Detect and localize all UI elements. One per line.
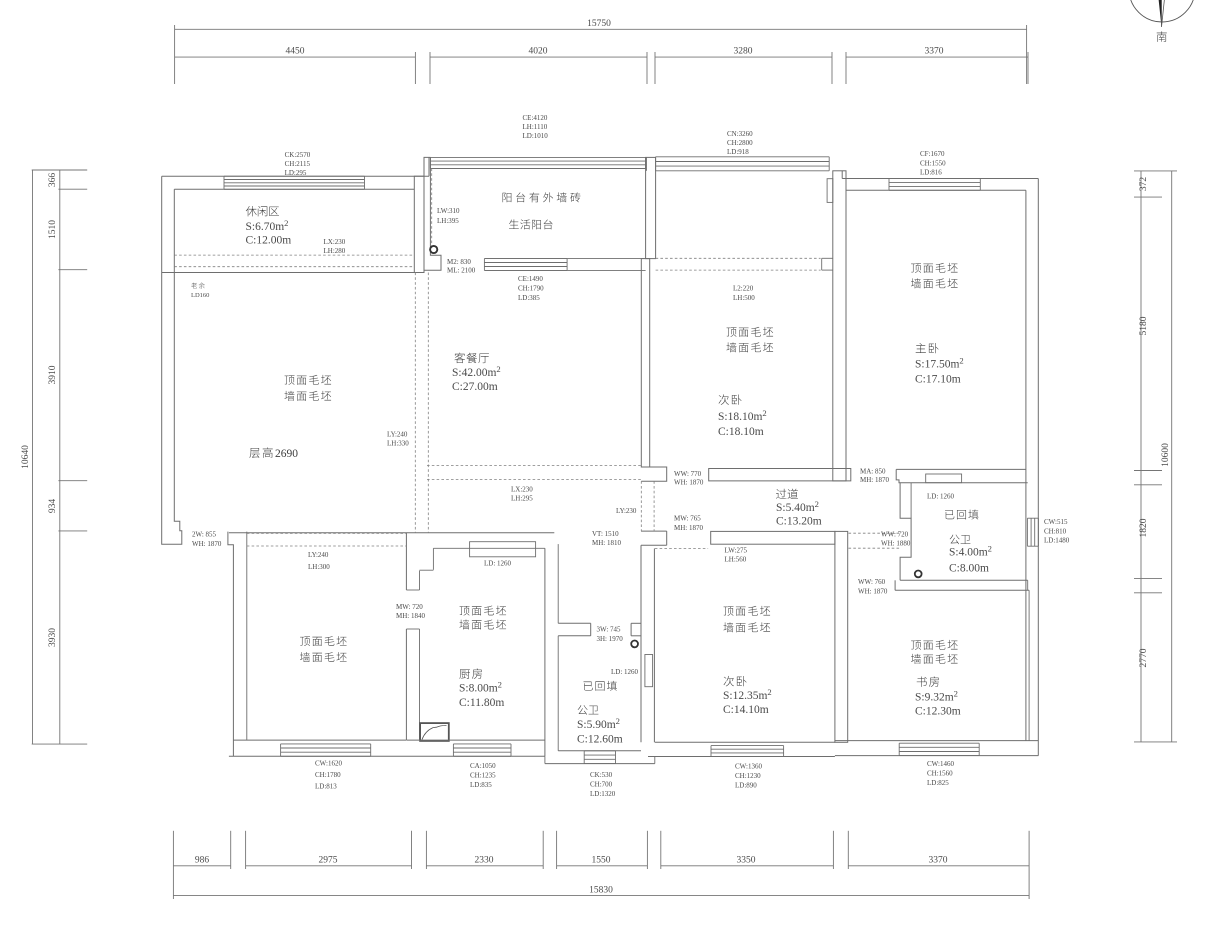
svg-text:LH:280: LH:280 — [324, 247, 346, 255]
svg-text:LD:825: LD:825 — [927, 779, 949, 787]
svg-text:LH:295: LH:295 — [511, 495, 533, 503]
svg-text:LD: 1260: LD: 1260 — [611, 668, 639, 676]
svg-text:5180: 5180 — [1139, 316, 1149, 335]
svg-text:LW:310: LW:310 — [437, 207, 460, 215]
svg-text:CK:2570: CK:2570 — [285, 151, 311, 159]
svg-text:LW:275: LW:275 — [725, 547, 748, 555]
svg-text:CH:1560: CH:1560 — [927, 770, 953, 778]
svg-text:LD:835: LD:835 — [470, 781, 492, 789]
svg-text:LD: 1260: LD: 1260 — [927, 492, 955, 500]
svg-text:15750: 15750 — [587, 19, 611, 29]
svg-text:MH: 1870: MH: 1870 — [860, 476, 889, 484]
svg-text:1820: 1820 — [1139, 518, 1149, 537]
svg-text:2770: 2770 — [1139, 648, 1149, 667]
svg-text:LH:560: LH:560 — [725, 556, 747, 564]
svg-text:C:27.00m: C:27.00m — [452, 381, 498, 393]
svg-text:CF:1670: CF:1670 — [920, 150, 945, 158]
svg-text:934: 934 — [48, 499, 58, 514]
svg-text:3350: 3350 — [737, 856, 756, 866]
svg-text:WW: 770: WW: 770 — [674, 470, 702, 478]
svg-text:C:14.10m: C:14.10m — [723, 704, 769, 716]
svg-text:MW: 765: MW: 765 — [674, 515, 701, 523]
svg-text:MH: 1870: MH: 1870 — [674, 524, 703, 532]
svg-text:ML: 2100: ML: 2100 — [447, 267, 476, 275]
svg-text:3370: 3370 — [925, 47, 944, 57]
svg-text:L2:220: L2:220 — [733, 285, 754, 293]
svg-text:10640: 10640 — [21, 445, 31, 469]
svg-text:LY:230: LY:230 — [616, 507, 637, 515]
svg-text:3280: 3280 — [734, 47, 753, 57]
svg-text:3H: 1970: 3H: 1970 — [597, 635, 624, 643]
svg-text:C:13.20m: C:13.20m — [776, 515, 822, 527]
svg-text:M2: 830: M2: 830 — [447, 258, 471, 266]
svg-text:LD:816: LD:816 — [920, 169, 942, 177]
svg-text:LD:295: LD:295 — [285, 169, 307, 177]
svg-text:LH:1110: LH:1110 — [523, 123, 548, 131]
svg-text:372: 372 — [1139, 177, 1149, 192]
svg-text:1510: 1510 — [48, 220, 58, 239]
svg-text:WW: 760: WW: 760 — [858, 578, 886, 586]
svg-text:LD:813: LD:813 — [315, 783, 337, 791]
svg-text:WW: 720: WW: 720 — [881, 531, 909, 539]
svg-text:CH:2115: CH:2115 — [285, 160, 311, 168]
svg-text:C:12.30m: C:12.30m — [915, 706, 961, 718]
svg-text:S:17.50m2: S:17.50m2 — [915, 355, 964, 370]
svg-text:LD:385: LD:385 — [518, 294, 540, 302]
svg-text:3910: 3910 — [48, 365, 58, 384]
svg-text:S:4.00m2: S:4.00m2 — [949, 543, 992, 558]
svg-text:3W: 745: 3W: 745 — [597, 626, 622, 634]
svg-text:S:12.35m2: S:12.35m2 — [723, 687, 772, 702]
svg-text:MH: 1840: MH: 1840 — [396, 612, 425, 620]
svg-text:LD160: LD160 — [191, 292, 209, 299]
svg-text:S:42.00m2: S:42.00m2 — [452, 364, 501, 379]
svg-text:986: 986 — [195, 856, 210, 866]
svg-text:4020: 4020 — [529, 47, 548, 57]
svg-text:CK:530: CK:530 — [590, 771, 613, 779]
svg-text:LX:230: LX:230 — [511, 486, 533, 494]
svg-text:CH:1780: CH:1780 — [315, 771, 341, 779]
svg-text:S:18.10m2: S:18.10m2 — [718, 408, 767, 423]
svg-text:CE:4120: CE:4120 — [523, 114, 548, 122]
svg-text:LD:918: LD:918 — [727, 148, 749, 156]
svg-text:CH:700: CH:700 — [590, 781, 613, 789]
svg-text:1550: 1550 — [592, 856, 611, 866]
svg-text:3930: 3930 — [48, 628, 58, 647]
svg-text:C:12.60m: C:12.60m — [577, 734, 623, 746]
svg-text:366: 366 — [48, 173, 58, 188]
svg-text:CN:3260: CN:3260 — [727, 130, 753, 138]
svg-text:15830: 15830 — [589, 885, 613, 895]
svg-text:S:8.00m2: S:8.00m2 — [459, 679, 502, 694]
svg-text:3370: 3370 — [929, 856, 948, 866]
svg-text:C:18.10m: C:18.10m — [718, 426, 764, 438]
svg-text:MH: 1810: MH: 1810 — [592, 539, 621, 547]
svg-text:S:9.32m2: S:9.32m2 — [915, 688, 958, 703]
svg-text:C:8.00m: C:8.00m — [949, 563, 989, 575]
svg-text:S:5.40m2: S:5.40m2 — [776, 499, 819, 514]
svg-text:CW:1620: CW:1620 — [315, 760, 342, 768]
svg-text:4450: 4450 — [286, 47, 305, 57]
svg-text:C:17.10m: C:17.10m — [915, 374, 961, 386]
svg-text:LD:890: LD:890 — [735, 782, 757, 790]
svg-text:LX:230: LX:230 — [324, 238, 346, 246]
svg-text:CW:515: CW:515 — [1044, 518, 1068, 526]
svg-text:MW: 720: MW: 720 — [396, 603, 423, 611]
svg-text:LH:330: LH:330 — [387, 440, 409, 448]
svg-text:LY:240: LY:240 — [308, 551, 329, 559]
svg-text:WH: 1870: WH: 1870 — [858, 588, 888, 596]
svg-text:CW:1460: CW:1460 — [927, 760, 954, 768]
svg-text:CA:1050: CA:1050 — [470, 762, 496, 770]
svg-text:LH:500: LH:500 — [733, 294, 755, 302]
svg-text:WH: 1870: WH: 1870 — [674, 479, 704, 487]
svg-text:LH:300: LH:300 — [308, 563, 330, 571]
svg-text:CH:1550: CH:1550 — [920, 160, 946, 168]
svg-text:10600: 10600 — [1161, 443, 1171, 467]
svg-text:VT: 1510: VT: 1510 — [592, 530, 619, 538]
svg-text:S:5.90m2: S:5.90m2 — [577, 716, 620, 731]
svg-text:CH:2800: CH:2800 — [727, 139, 753, 147]
svg-text:C:11.80m: C:11.80m — [459, 697, 504, 709]
svg-text:CE:1490: CE:1490 — [518, 275, 543, 283]
svg-text:WH: 1880: WH: 1880 — [881, 540, 911, 548]
svg-text:LD:1480: LD:1480 — [1044, 537, 1070, 545]
svg-text:CH:810: CH:810 — [1044, 528, 1067, 536]
svg-text:MA: 850: MA: 850 — [860, 468, 886, 476]
svg-text:0: 0 — [292, 448, 298, 460]
svg-text:WH: 1870: WH: 1870 — [192, 540, 222, 548]
svg-text:2975: 2975 — [319, 856, 338, 866]
svg-text:LH:395: LH:395 — [437, 217, 459, 225]
svg-text:2W: 855: 2W: 855 — [192, 531, 217, 539]
svg-text:LD:1320: LD:1320 — [590, 790, 616, 798]
svg-text:CH:1790: CH:1790 — [518, 285, 544, 293]
svg-text:CW:1360: CW:1360 — [735, 763, 762, 771]
svg-text:CH:1230: CH:1230 — [735, 772, 761, 780]
svg-text:LD:1010: LD:1010 — [523, 132, 549, 140]
svg-text:S:6.70m2: S:6.70m2 — [246, 218, 289, 233]
svg-text:LY:240: LY:240 — [387, 431, 408, 439]
svg-text:C:12.00m: C:12.00m — [246, 235, 292, 247]
svg-text:2330: 2330 — [475, 856, 494, 866]
svg-text:CH:1235: CH:1235 — [470, 772, 496, 780]
svg-text:LD: 1260: LD: 1260 — [484, 560, 512, 568]
